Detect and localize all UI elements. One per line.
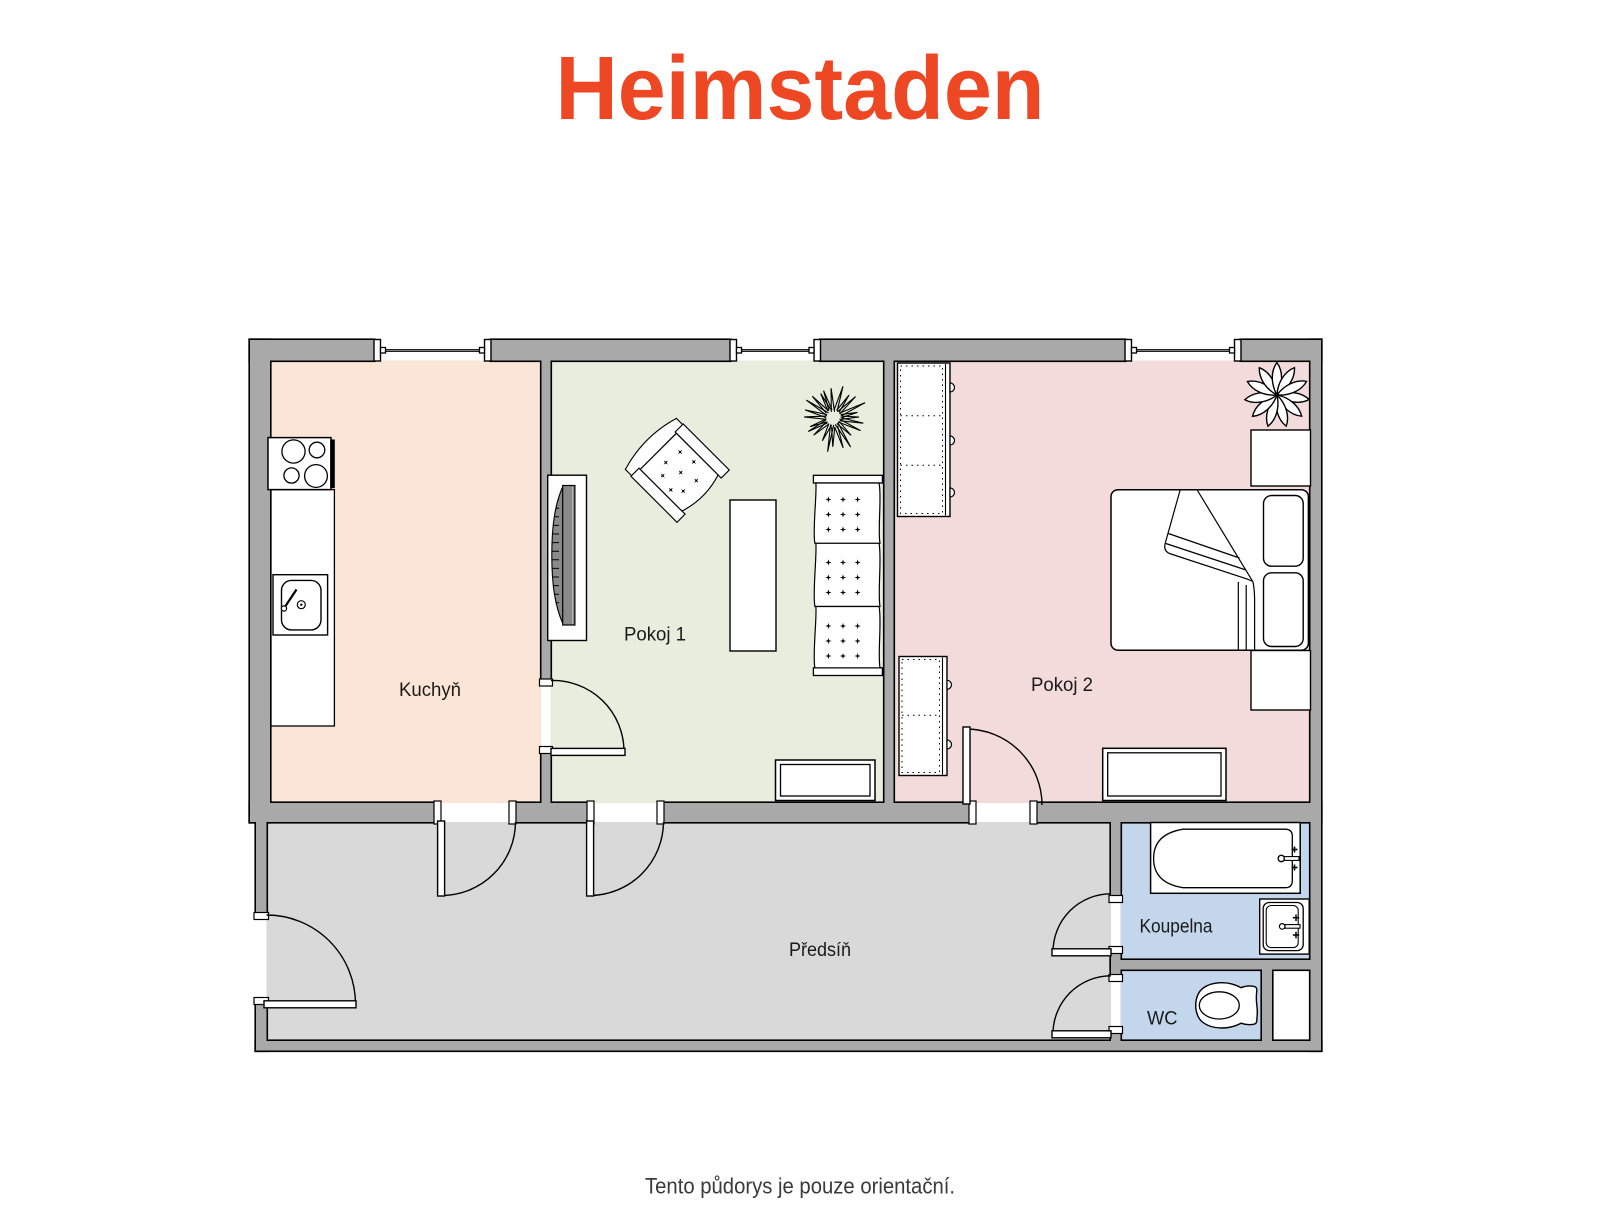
svg-text:Pokoj 1: Pokoj 1 — [624, 624, 686, 646]
svg-text:Koupelna: Koupelna — [1140, 915, 1213, 937]
svg-text:Tento půdorys je pouze orienta: Tento půdorys je pouze orientační. — [645, 1174, 955, 1199]
svg-text:Pokoj 2: Pokoj 2 — [1031, 674, 1093, 696]
svg-text:Předsíň: Předsíň — [789, 939, 851, 961]
svg-text:WC: WC — [1147, 1008, 1178, 1030]
svg-text:Heimstaden: Heimstaden — [556, 39, 1045, 139]
svg-text:Kuchyň: Kuchyň — [399, 679, 461, 701]
